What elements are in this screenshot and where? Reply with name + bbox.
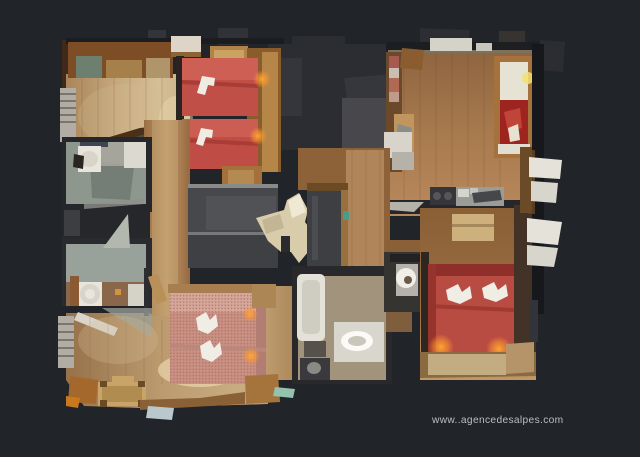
- svg-text:www..agencedesalpes.com: www..agencedesalpes.com: [431, 415, 564, 426]
